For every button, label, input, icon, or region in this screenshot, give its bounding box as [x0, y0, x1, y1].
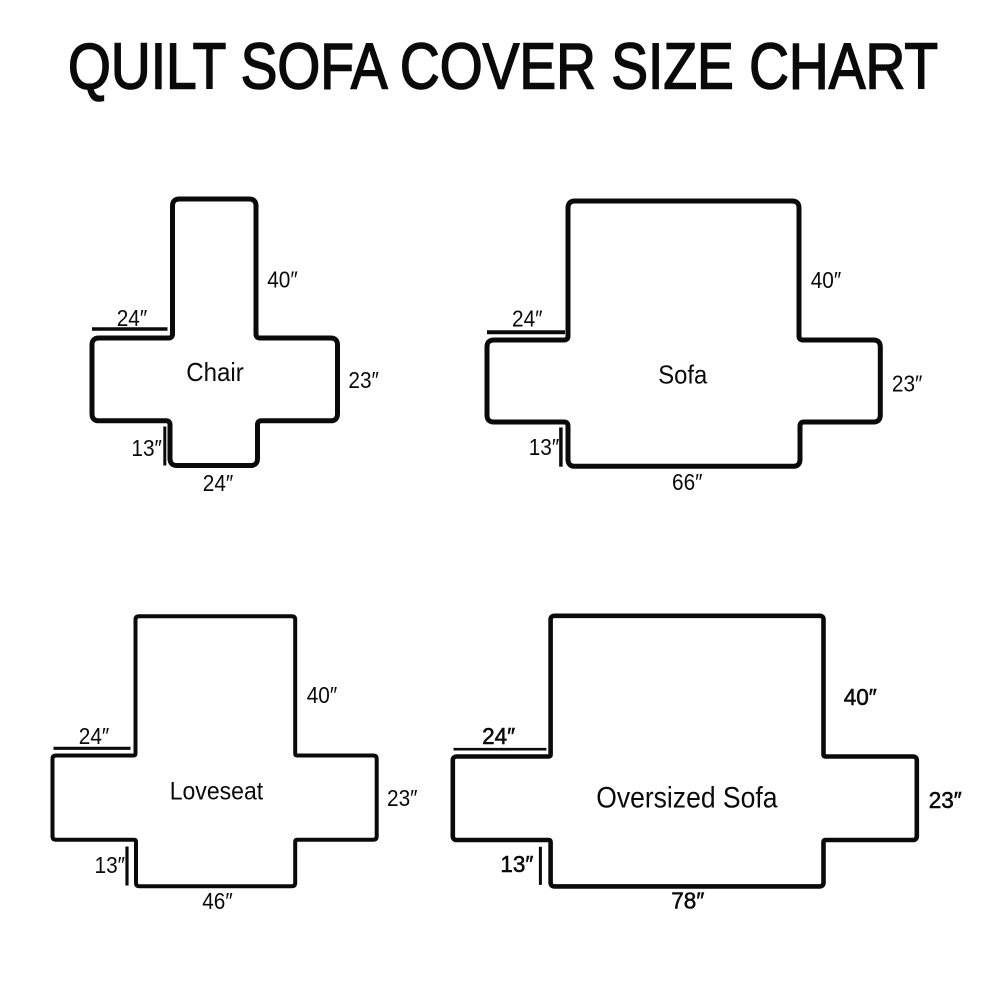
svg-text:Sofa: Sofa — [658, 360, 707, 390]
svg-text:24″: 24″ — [203, 470, 234, 496]
svg-text:24″: 24″ — [117, 305, 148, 331]
svg-text:23″: 23″ — [387, 785, 418, 811]
svg-text:24″: 24″ — [482, 723, 515, 749]
svg-text:Loveseat: Loveseat — [170, 778, 264, 806]
svg-text:40″: 40″ — [267, 266, 298, 292]
svg-text:23″: 23″ — [929, 787, 962, 813]
svg-text:Chair: Chair — [186, 357, 244, 387]
svg-text:40″: 40″ — [307, 682, 338, 708]
svg-text:13″: 13″ — [500, 851, 533, 877]
svg-text:66″: 66″ — [672, 469, 703, 495]
svg-text:78″: 78″ — [671, 888, 704, 914]
svg-text:23″: 23″ — [892, 371, 923, 397]
svg-text:40″: 40″ — [811, 267, 842, 293]
svg-text:46″: 46″ — [202, 888, 233, 914]
svg-text:40″: 40″ — [844, 684, 877, 710]
svg-text:24″: 24″ — [79, 723, 110, 749]
svg-text:23″: 23″ — [348, 367, 379, 393]
svg-text:13″: 13″ — [95, 852, 126, 878]
svg-text:QUILT SOFA COVER SIZE CHART: QUILT SOFA COVER SIZE CHART — [68, 29, 938, 102]
svg-text:Oversized Sofa: Oversized Sofa — [596, 782, 778, 815]
svg-text:13″: 13″ — [131, 435, 162, 461]
svg-text:13″: 13″ — [529, 434, 560, 460]
svg-text:24″: 24″ — [512, 305, 543, 331]
